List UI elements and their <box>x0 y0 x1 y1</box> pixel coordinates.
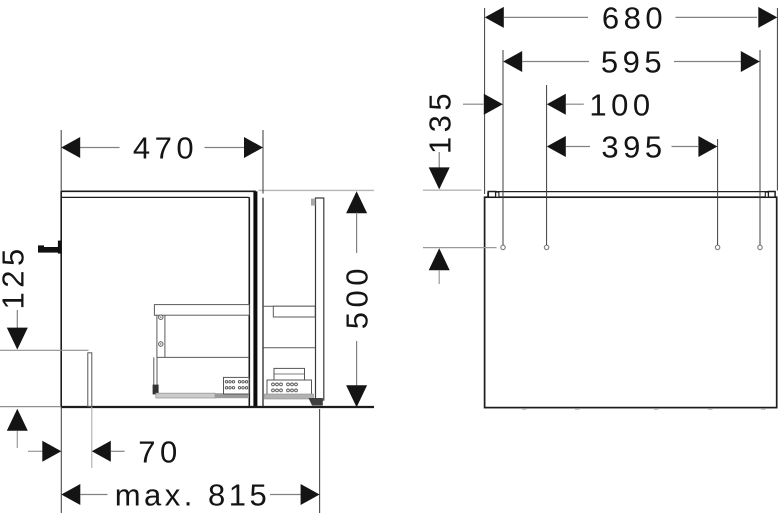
svg-text:70: 70 <box>138 435 181 470</box>
svg-text:680: 680 <box>602 1 667 36</box>
svg-text:max. 815: max. 815 <box>115 478 271 513</box>
svg-text:135: 135 <box>422 89 457 154</box>
svg-text:595: 595 <box>601 45 666 80</box>
svg-text:395: 395 <box>601 130 666 165</box>
svg-text:500: 500 <box>339 264 374 329</box>
svg-text:470: 470 <box>133 131 198 166</box>
svg-text:100: 100 <box>589 87 654 122</box>
svg-text:125: 125 <box>0 244 30 309</box>
